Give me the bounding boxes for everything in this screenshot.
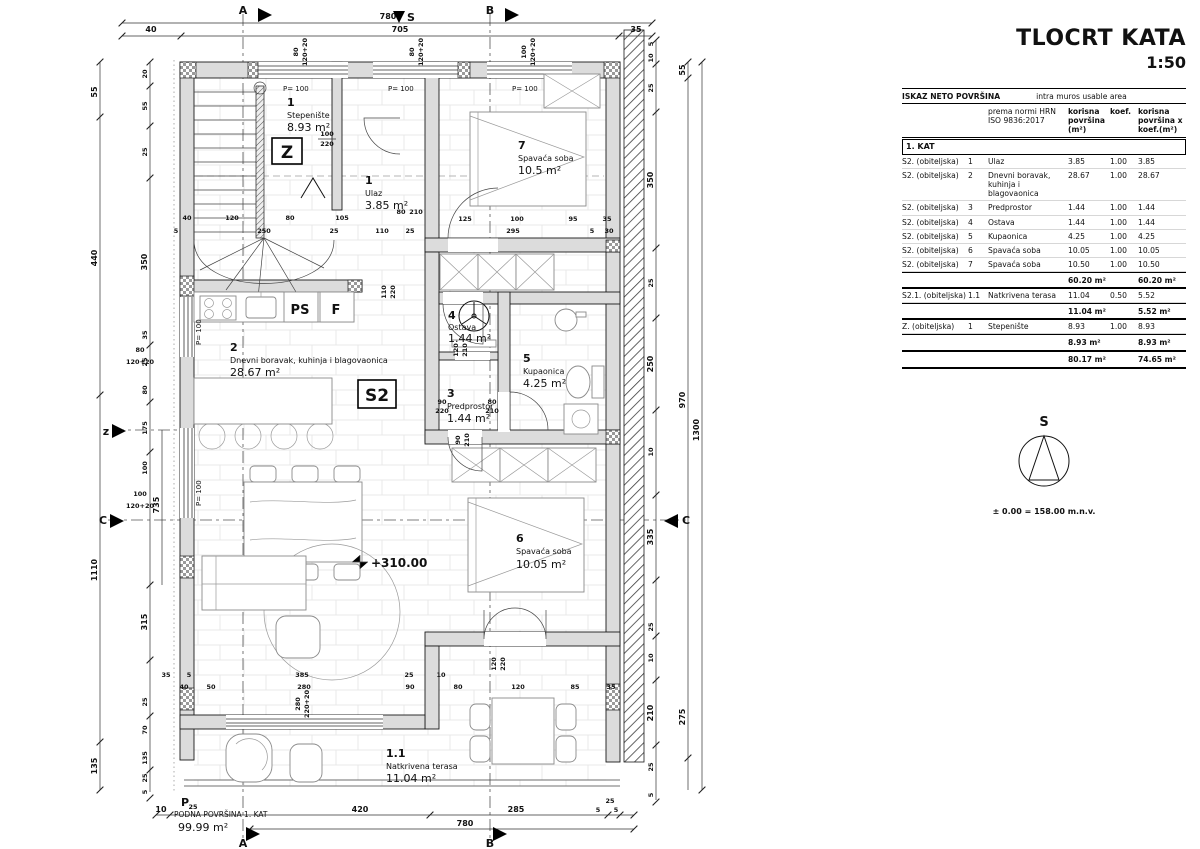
door-dim: 220 <box>499 657 507 671</box>
dim: 50 <box>206 683 216 691</box>
dim: 250 <box>646 355 655 372</box>
room-name: Spavaća soba <box>518 153 574 163</box>
cell-num: 6 <box>968 246 986 255</box>
window-dim: 100 <box>133 490 147 498</box>
dim: 335 <box>646 528 655 545</box>
dim: 25 <box>647 83 655 93</box>
dim-bottom-total: 780 <box>457 819 474 828</box>
dim: 10 <box>436 671 446 679</box>
cell-name: Spavaća soba <box>988 246 1066 255</box>
dim: 85 <box>570 683 580 691</box>
table-subtotal: 8.93 m² 8.93 m² <box>902 334 1186 351</box>
dim: 25 <box>141 773 149 783</box>
cell-num: 7 <box>968 260 986 269</box>
dim: 135 <box>141 751 149 765</box>
room-area: 11.04 m² <box>386 772 436 785</box>
dim: 25 <box>647 762 655 772</box>
cell-area: 4.25 <box>1068 232 1108 241</box>
dim: 35 <box>141 330 149 340</box>
dim: 70 <box>141 725 149 735</box>
window-dim: 80 <box>135 346 145 354</box>
dim: 5 <box>141 789 149 794</box>
col-header-norm: prema normi HRN ISO 9836:2017 <box>988 107 1066 134</box>
room-name: Kupaonica <box>523 367 564 376</box>
cell-num: 2 <box>968 171 986 198</box>
dim: 5 <box>614 806 619 814</box>
dim: 120 <box>511 683 525 691</box>
cell-name: Dnevni boravak, kuhinja i blagovaonica <box>988 171 1066 198</box>
dim: 210 <box>646 704 655 721</box>
room-number: 5 <box>523 352 531 365</box>
room-area: 10.05 m² <box>516 558 566 571</box>
window-dim: 120+20 <box>126 358 155 366</box>
room-name: Ulaz <box>365 189 382 198</box>
room-number: 1 <box>365 174 373 187</box>
unit-label-s2: S2 <box>365 386 389 406</box>
dim: 40 <box>179 683 189 691</box>
room-name: Ostava <box>448 323 476 332</box>
dim: 315 <box>140 613 149 630</box>
dim: 25 <box>404 671 414 679</box>
cell-koef: 1.00 <box>1110 157 1136 166</box>
window-dim: 120+20 <box>301 37 309 66</box>
dim: 25 <box>647 278 655 288</box>
cell-area: 1.44 <box>1068 218 1108 227</box>
parapet-label: P= 100 <box>195 480 203 506</box>
cell-name: Natkrivena terasa <box>988 291 1066 300</box>
window-dim: 100 <box>520 45 528 59</box>
dim: 25 <box>405 227 415 235</box>
col-header-area: korisna površina (m²) <box>1068 107 1108 134</box>
window-dim: 80 <box>408 47 416 57</box>
cell-unit: S2. (obiteljska) <box>902 246 966 255</box>
section-marker-b: B <box>486 837 494 849</box>
cell-koef: 0.50 <box>1110 291 1136 300</box>
dim: 35 <box>630 25 642 34</box>
dim: 30 <box>604 227 614 235</box>
dim: 105 <box>335 214 349 222</box>
corridor-wardrobe <box>440 254 554 290</box>
subtotal-area: 60.20 m² <box>1068 276 1108 285</box>
door-dim: 210 <box>409 208 423 216</box>
cell-name: Ostava <box>988 218 1066 227</box>
dim: 40 <box>145 25 157 34</box>
dim: 25 <box>141 697 149 707</box>
cell-num: 5 <box>968 232 986 241</box>
dim: 110 <box>375 227 389 235</box>
dim: 90 <box>405 683 415 691</box>
cell-result: 10.50 <box>1138 260 1196 269</box>
cell-area: 1.44 <box>1068 203 1108 212</box>
section-marker-b: B <box>486 4 494 17</box>
col-header-koef: koef. <box>1110 107 1136 134</box>
door-dim: 210 <box>463 433 471 447</box>
floor-plan-sheet: { "title": {"main": "TLOCRT KATA", "scal… <box>0 0 1200 849</box>
north-arrow-block: S ± 0.00 = 158.00 m.n.v. <box>902 413 1186 516</box>
dim: 705 <box>392 25 409 34</box>
window-dim: 80 <box>292 47 300 57</box>
dim: 55 <box>141 101 149 111</box>
dim: 55 <box>678 64 687 76</box>
table-row: S2.1. (obiteljska) 1.1 Natkrivena terasa… <box>902 289 1186 303</box>
room-area: 1.44 m² <box>448 332 491 345</box>
parapet-label: P= 100 <box>388 85 414 93</box>
cell-result: 1.44 <box>1138 203 1196 212</box>
dim: 20 <box>141 69 149 79</box>
table-total: 80.17 m² 74.65 m² <box>902 352 1186 369</box>
cell-name: Stepenište <box>988 322 1066 331</box>
cell-name: Spavaća soba <box>988 260 1066 269</box>
cell-result: 8.93 <box>1138 322 1196 331</box>
dim: 55 <box>90 86 99 98</box>
cell-koef: 1.00 <box>1110 171 1136 198</box>
cell-name: Kupaonica <box>988 232 1066 241</box>
room-area: 28.67 m² <box>230 366 280 379</box>
table-subtotal: 11.04 m² 5.52 m² <box>902 303 1186 320</box>
dim: 125 <box>458 215 472 223</box>
parapet-label: P= 100 <box>283 85 309 93</box>
cell-unit: S2.1. (obiteljska) <box>902 291 966 300</box>
dim: 10 <box>647 53 655 63</box>
cell-unit: S2. (obiteljska) <box>902 203 966 212</box>
dim: 275 <box>678 708 687 725</box>
dim: 80 <box>285 214 295 222</box>
dim: 350 <box>646 171 655 188</box>
room-area: 3.85 m² <box>365 199 408 212</box>
cell-unit: S2. (obiteljska) <box>902 260 966 269</box>
subtotal-area: 11.04 m² <box>1068 307 1108 316</box>
dim: 100 <box>510 215 524 223</box>
section-marker-s: S <box>407 11 415 24</box>
dim: 25 <box>141 147 149 157</box>
dim: 5 <box>174 227 179 235</box>
dim: 40 <box>182 214 192 222</box>
col-header-result: korisna površina x koef.(m²) <box>1138 107 1196 134</box>
room-number: 6 <box>516 532 524 545</box>
cell-koef: 1.00 <box>1110 232 1136 241</box>
cell-num: 1 <box>968 322 986 331</box>
neighbour-building-hatch <box>624 30 644 762</box>
table-row: S2. (obiteljska) 5 Kupaonica 4.25 1.00 4… <box>902 230 1186 244</box>
kitchen-f-label: F <box>332 303 341 318</box>
table-row: S2. (obiteljska) 6 Spavaća soba 10.05 1.… <box>902 244 1186 258</box>
table-row: S2. (obiteljska) 2 Dnevni boravak, kuhin… <box>902 169 1186 201</box>
door-dim: 90 <box>437 398 447 406</box>
dim: 100 <box>141 461 149 475</box>
dim: 385 <box>295 671 309 679</box>
table-subtotal: 60.20 m² 60.20 m² <box>902 272 1186 289</box>
door-dim: 120 <box>490 657 498 671</box>
dim: 80 <box>141 385 149 395</box>
dim: 1300 <box>692 418 701 441</box>
kitchen-ps-label: PS <box>291 303 310 318</box>
cell-area: 10.05 <box>1068 246 1108 255</box>
cell-result: 1.44 <box>1138 218 1196 227</box>
cell-result: 3.85 <box>1138 157 1196 166</box>
room-name: Natkrivena terasa <box>386 762 458 771</box>
floor-area-note: P 25 PODNA POVRŠINA 1. KAT 99.99 m² <box>174 796 268 834</box>
subtotal-result: 8.93 m² <box>1138 338 1196 347</box>
dim: 5 <box>596 806 601 814</box>
dim: 5 <box>647 41 655 46</box>
cell-result: 5.52 <box>1138 291 1196 300</box>
area-table: ISKAZ NETO POVRŠINA intra muros usable a… <box>902 88 1186 369</box>
table-subtitle: intra muros usable area <box>1036 92 1127 101</box>
cell-name: Ulaz <box>988 157 1066 166</box>
room-number: 1 <box>287 96 295 109</box>
dim: 5 <box>647 792 655 797</box>
cell-unit: S2. (obiteljska) <box>902 232 966 241</box>
parapet-label: P= 100 <box>512 85 538 93</box>
cell-num: 1 <box>968 157 986 166</box>
cell-name: Predprostor <box>988 203 1066 212</box>
dim: 10 <box>155 805 167 814</box>
door-dim: 90 <box>454 435 462 445</box>
dim: 420 <box>352 805 369 814</box>
dim: 280 <box>297 683 311 691</box>
cell-koef: 1.00 <box>1110 260 1136 269</box>
room-area: 4.25 m² <box>523 377 566 390</box>
room-area: 10.5 m² <box>518 164 561 177</box>
dim: 25 <box>647 622 655 632</box>
cell-area: 3.85 <box>1068 157 1108 166</box>
drawing-title: TLOCRT KATA <box>902 26 1186 51</box>
room-area: 1.44 m² <box>447 412 490 425</box>
north-label: S <box>1039 415 1048 430</box>
cell-koef: 1.00 <box>1110 218 1136 227</box>
dim: 1110 <box>90 558 99 581</box>
cell-area: 28.67 <box>1068 171 1108 198</box>
cell-unit: S2. (obiteljska) <box>902 171 966 198</box>
subtotal-result: 5.52 m² <box>1138 307 1196 316</box>
cell-num: 4 <box>968 218 986 227</box>
cell-area: 8.93 <box>1068 322 1108 331</box>
dim: 80 <box>453 683 463 691</box>
table-header: ISKAZ NETO POVRŠINA intra muros usable a… <box>902 88 1186 104</box>
cell-unit: Z. (obiteljska) <box>902 322 966 331</box>
room-area: 8.93 m² <box>287 121 330 134</box>
total-area: 80.17 m² <box>1068 355 1108 364</box>
table-row: S2. (obiteljska) 1 Ulaz 3.85 1.00 3.85 <box>902 155 1186 169</box>
dim: 25 <box>329 227 339 235</box>
table-column-headers: prema normi HRN ISO 9836:2017 korisna po… <box>902 104 1186 138</box>
room-name: Spavaća soba <box>516 546 572 556</box>
north-arrow-icon: S <box>984 413 1104 499</box>
unit-label-z: Z <box>281 143 293 163</box>
dim: 35 <box>161 671 171 679</box>
dim: 970 <box>678 391 687 408</box>
cell-unit: S2. (obiteljska) <box>902 218 966 227</box>
dim: 35 <box>606 683 616 691</box>
subtotal-area: 8.93 m² <box>1068 338 1108 347</box>
door-dim: 220 <box>389 285 397 299</box>
cell-area: 11.04 <box>1068 291 1108 300</box>
dim: 5 <box>187 671 192 679</box>
window-dim: 120+20 <box>126 502 155 510</box>
room-number: 4 <box>448 309 456 322</box>
door-dim: 220 <box>320 140 334 148</box>
dim: 10 <box>647 447 655 457</box>
dim: 350 <box>140 253 149 270</box>
cell-koef: 1.00 <box>1110 203 1136 212</box>
datum-level: ± 0.00 = 158.00 m.n.v. <box>902 507 1186 516</box>
dim: 175 <box>141 421 149 435</box>
section-marker-a: A <box>239 4 248 17</box>
window-dim: 280 <box>294 697 302 711</box>
room-number: 7 <box>518 139 526 152</box>
cell-result: 10.05 <box>1138 246 1196 255</box>
floor-area-value: 99.99 m² <box>178 821 228 834</box>
window-dim: 120+20 <box>529 37 537 66</box>
room-number: 3 <box>447 387 455 400</box>
room-number: 2 <box>230 341 238 354</box>
dim: 250 <box>257 227 271 235</box>
dim: 135 <box>90 757 99 774</box>
cell-num: 1.1 <box>968 291 986 300</box>
section-marker-c: C <box>682 514 690 527</box>
window-dim: 120+20 <box>417 37 425 66</box>
cell-result: 28.67 <box>1138 171 1196 198</box>
cell-result: 4.25 <box>1138 232 1196 241</box>
cell-num: 3 <box>968 203 986 212</box>
level-value: +310.00 <box>371 556 427 570</box>
room-name: Predprostor <box>447 402 494 411</box>
table-row: S2. (obiteljska) 7 Spavaća soba 10.50 1.… <box>902 258 1186 272</box>
cell-koef: 1.00 <box>1110 322 1136 331</box>
section-marker-c: C <box>99 514 107 527</box>
table-section-title: 1. KAT <box>902 139 1186 155</box>
dim: 10 <box>647 653 655 663</box>
door-dim: 110 <box>380 285 388 299</box>
table-title: ISKAZ NETO POVRŠINA <box>902 92 1000 101</box>
window-dim: 220+20 <box>303 689 311 718</box>
section-marker-z: z <box>103 425 109 438</box>
cell-koef: 1.00 <box>1110 246 1136 255</box>
cell-unit: S2. (obiteljska) <box>902 157 966 166</box>
dim: 295 <box>506 227 520 235</box>
drawing-scale: 1:50 <box>902 53 1186 72</box>
floor-area-title: PODNA POVRŠINA 1. KAT <box>174 810 268 819</box>
dim: 95 <box>568 215 578 223</box>
subtotal-result: 60.20 m² <box>1138 276 1196 285</box>
parapet-label: P= 100 <box>195 319 203 345</box>
room-name: Stepenište <box>287 110 330 120</box>
room-name: Dnevni boravak, kuhinja i blagovaonica <box>230 356 388 365</box>
room-number: 1.1 <box>386 747 406 760</box>
dim: 5 <box>590 227 595 235</box>
dim: 25 <box>605 797 615 805</box>
table-row: S2. (obiteljska) 4 Ostava 1.44 1.00 1.44 <box>902 216 1186 230</box>
total-result: 74.65 m² <box>1138 355 1196 364</box>
dim: 35 <box>602 215 612 223</box>
table-row: Z. (obiteljska) 1 Stepenište 8.93 1.00 8… <box>902 320 1186 334</box>
table-row: S2. (obiteljska) 3 Predprostor 1.44 1.00… <box>902 201 1186 215</box>
dim: 285 <box>508 805 525 814</box>
dim: 120 <box>225 214 239 222</box>
title-block-panel: TLOCRT KATA 1:50 ISKAZ NETO POVRŠINA int… <box>902 26 1186 516</box>
dim: 440 <box>90 249 99 266</box>
cell-area: 10.50 <box>1068 260 1108 269</box>
